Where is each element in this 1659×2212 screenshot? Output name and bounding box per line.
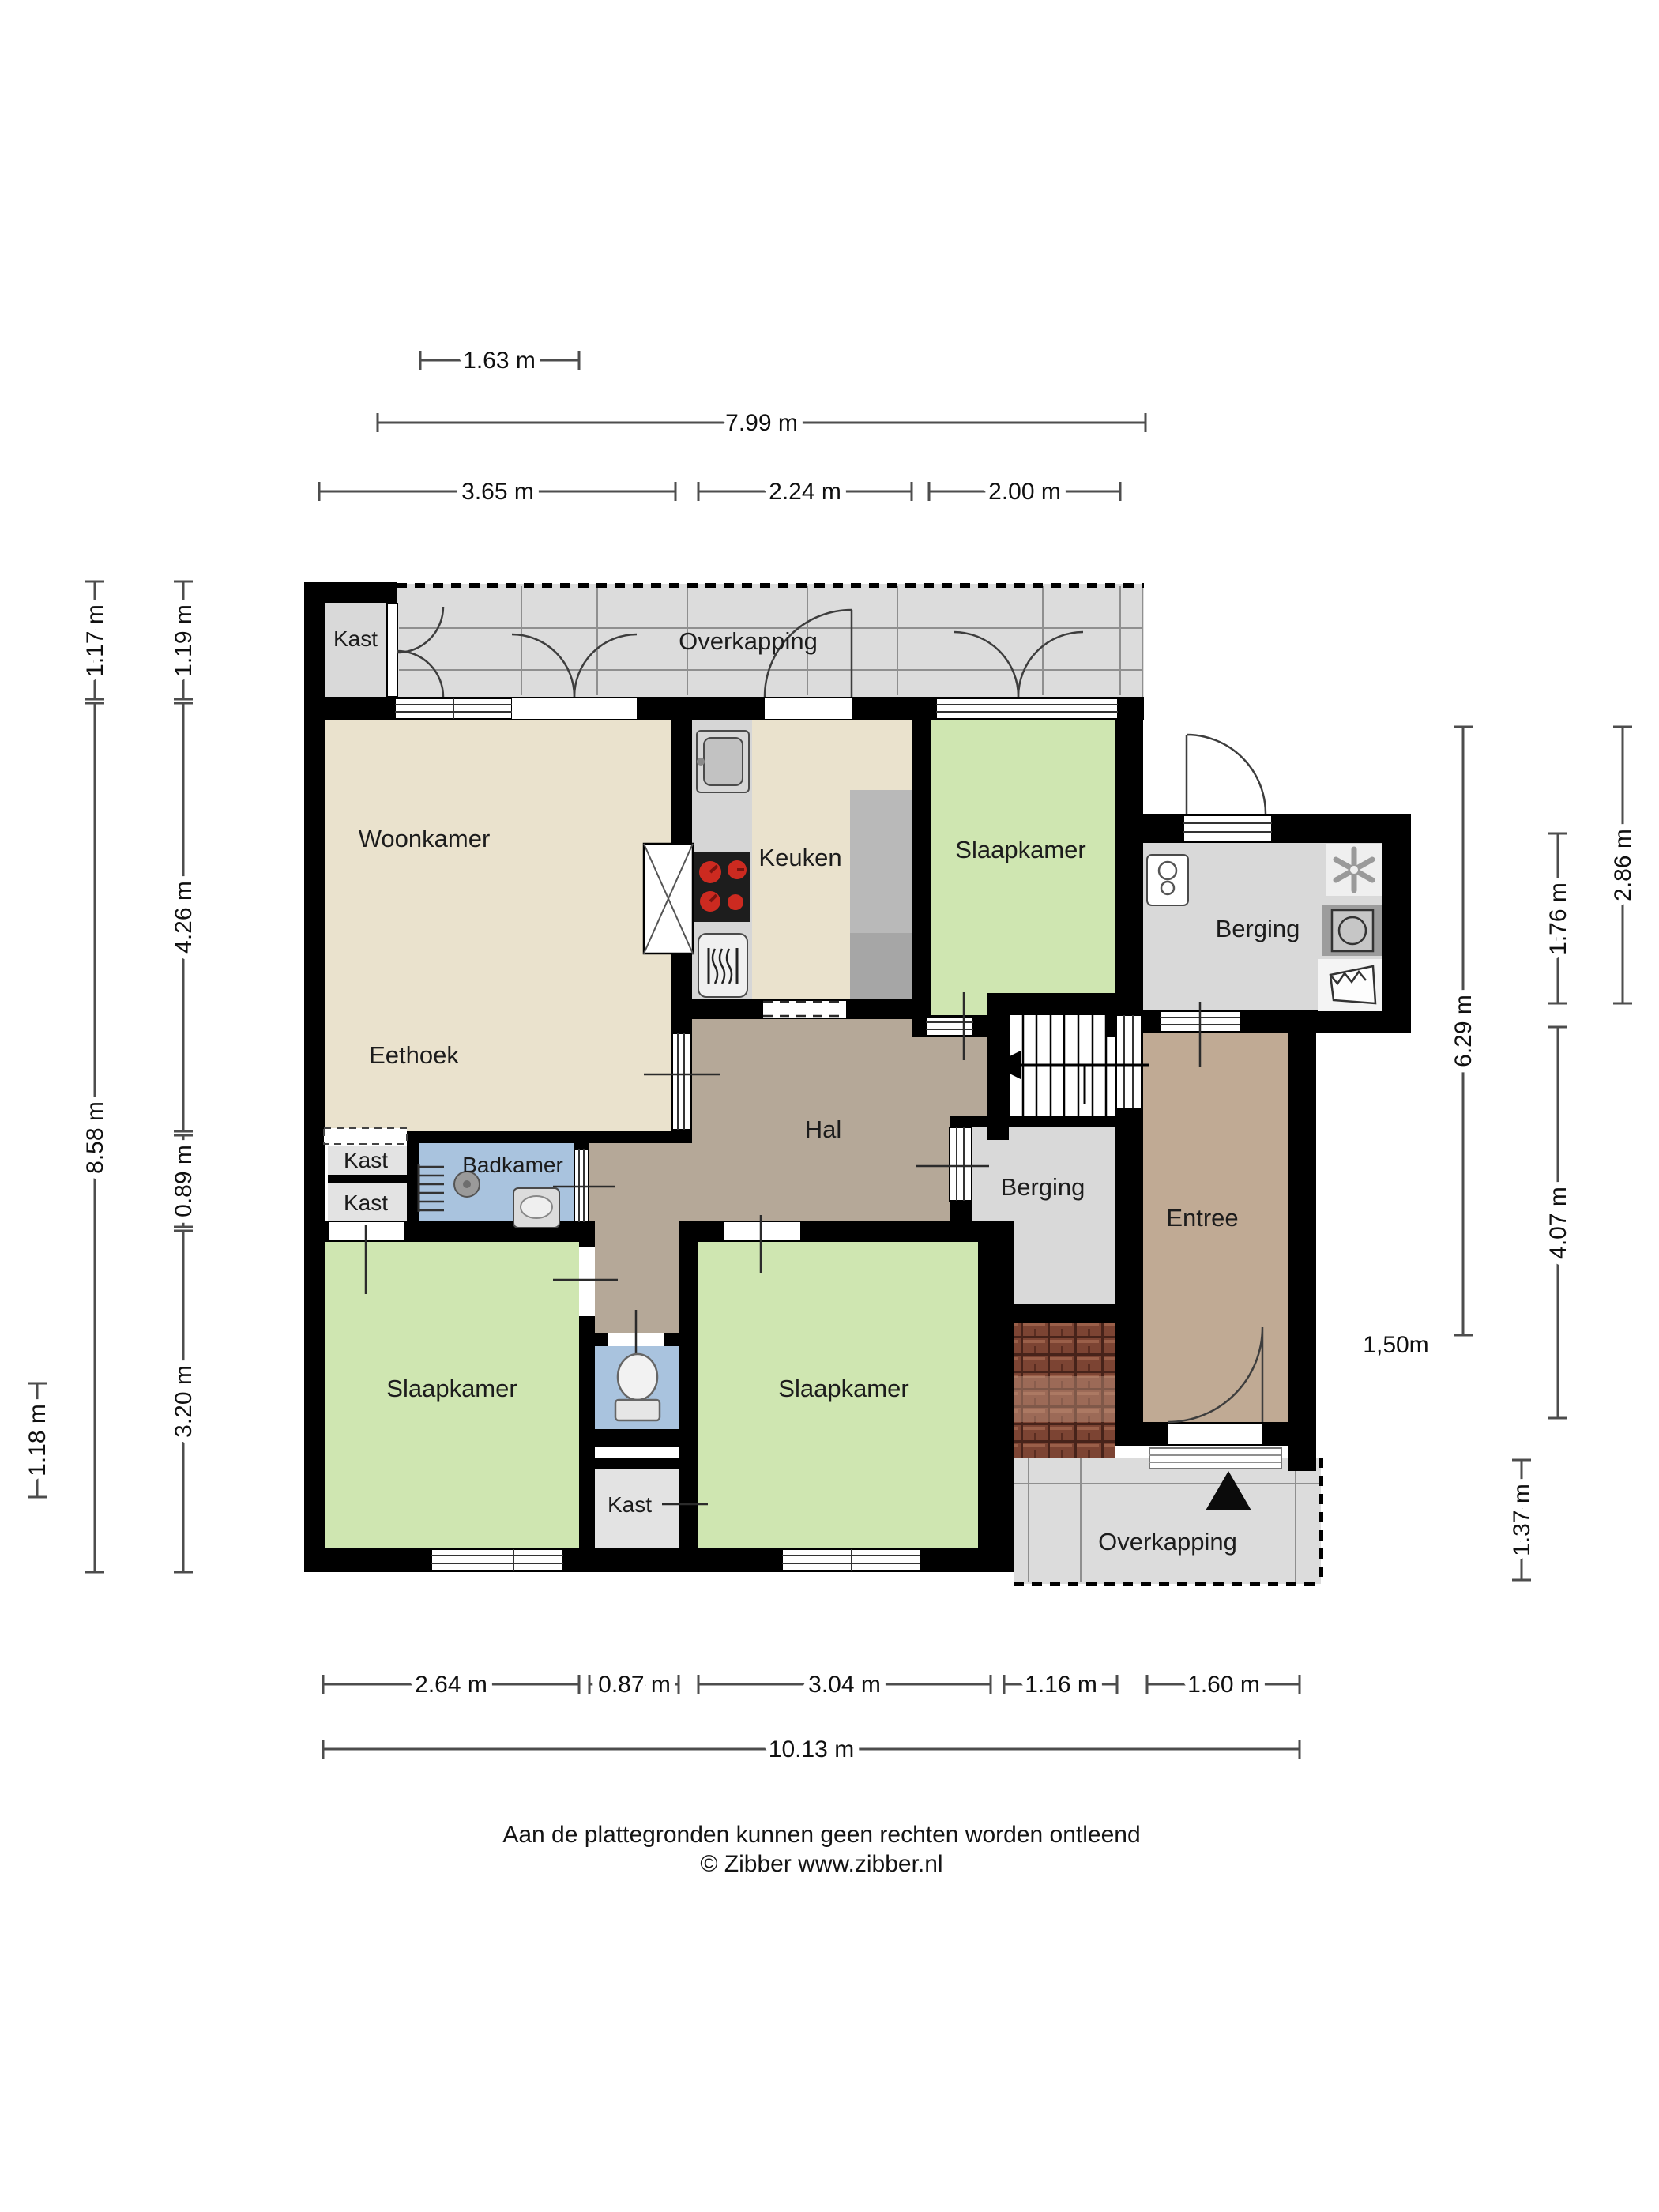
kitchen-cabinet — [850, 933, 912, 999]
room-label-overkapping-br: Overkapping — [1098, 1528, 1237, 1556]
floor-hal — [589, 1143, 692, 1221]
dimension: 0.89 m — [171, 1135, 197, 1227]
dimension-label: 7.99 m — [725, 410, 798, 436]
room-label-slaapkamer-bm: Slaapkamer — [778, 1375, 908, 1402]
ventilation-fan-icon — [1326, 844, 1382, 896]
brick-highlight — [1014, 1376, 1115, 1422]
room-label-badkamer: Badkamer — [462, 1153, 563, 1177]
dimension: 7.99 m — [378, 410, 1145, 436]
dimension: 1.63 m — [420, 348, 579, 374]
dimension: 1.76 m — [1545, 833, 1571, 1003]
room-label-berging-inner: Berging — [1001, 1173, 1085, 1201]
dimension: 2.00 m — [929, 479, 1120, 505]
footer: Aan de plattegronden kunnen geen rechten… — [502, 1822, 1140, 1877]
front-door-opening — [1168, 1424, 1262, 1444]
dimension-label: 3.04 m — [808, 1672, 881, 1698]
door-opening — [672, 1033, 690, 1130]
dimension-label: 10.13 m — [769, 1736, 854, 1762]
dimension-label: 1.60 m — [1187, 1672, 1260, 1698]
dimension: 2.86 m — [1610, 727, 1636, 1003]
toilet-icon — [615, 1354, 660, 1420]
dimension: 3.04 m — [698, 1672, 991, 1698]
pass-opening — [763, 1001, 846, 1018]
room-label-slaapkamer-tr: Slaapkamer — [955, 836, 1085, 863]
dimension: 3.65 m — [319, 479, 675, 505]
dimension: 1.17 m — [82, 581, 108, 699]
dimension: 10.13 m — [323, 1736, 1300, 1762]
brick-steps — [1014, 1323, 1115, 1458]
washing-machine-icon — [1322, 905, 1382, 956]
dimension: 1.60 m — [1147, 1672, 1300, 1698]
floor-plan: Kast Overkapping Woonkamer Keuken Slaapk… — [0, 0, 1659, 2212]
room-label-keuken: Keuken — [758, 844, 841, 871]
dimension-label: 0.89 m — [171, 1145, 197, 1217]
dimension-label: 2.64 m — [415, 1672, 487, 1698]
sink-icon — [697, 731, 749, 792]
door-opening — [765, 698, 852, 719]
dimension: 1.16 m — [1004, 1672, 1117, 1698]
footer-disclaimer: Aan de plattegronden kunnen geen rechten… — [502, 1822, 1140, 1848]
room-label-hal: Hal — [805, 1115, 842, 1143]
window — [782, 1549, 920, 1571]
room-label-overkapping-top: Overkapping — [679, 627, 818, 655]
floor-hal — [595, 1221, 679, 1333]
door-opening — [512, 698, 637, 719]
dimension-label: 6.29 m — [1450, 995, 1477, 1067]
dimension-label: 2.86 m — [1610, 829, 1636, 901]
dimension: 3.20 m — [171, 1231, 197, 1572]
dimension: 2.24 m — [698, 479, 912, 505]
floor-woonkamer-eethoek — [325, 720, 671, 1143]
room-label-berging-ext: Berging — [1216, 915, 1300, 942]
dimension: 1.37 m — [1509, 1460, 1535, 1580]
floor-overkapping-br — [1014, 1458, 1321, 1584]
door-opening — [950, 1127, 972, 1201]
stove-icon — [694, 852, 750, 922]
room-label-entree: Entree — [1166, 1204, 1238, 1232]
dimension: 4.26 m — [171, 703, 197, 1131]
dimension-label: 2.24 m — [769, 479, 841, 505]
dimension-label: 3.65 m — [461, 479, 534, 505]
dimension: 6.29 m — [1450, 727, 1477, 1335]
floor-slaapkamer-tr — [931, 720, 1115, 1015]
dimension-label: 1.16 m — [1025, 1672, 1097, 1698]
dimension-label: 8.58 m — [82, 1101, 108, 1174]
dimension-label: 0.87 m — [598, 1672, 671, 1698]
dimension-label: 1.19 m — [171, 604, 197, 677]
window — [395, 698, 512, 719]
dimension: 2.64 m — [323, 1672, 579, 1698]
entrance-step — [1149, 1448, 1281, 1469]
oven-icon — [698, 934, 747, 997]
door-opening — [724, 1222, 800, 1240]
height-note: 1,50m — [1363, 1332, 1428, 1358]
dimension-label: 4.07 m — [1545, 1187, 1571, 1259]
dimension-label: 1.76 m — [1545, 882, 1571, 955]
dimension-label: 4.26 m — [171, 881, 197, 954]
room-label-kast-bottom: Kast — [608, 1492, 652, 1517]
window — [936, 698, 1118, 719]
floor-entree — [1143, 1030, 1288, 1446]
room-label-kast-tl: Kast — [333, 626, 378, 651]
dimension: 0.87 m — [589, 1672, 679, 1698]
dimension: 8.58 m — [82, 703, 108, 1572]
internal-window — [1116, 1015, 1142, 1108]
door-opening — [1183, 815, 1272, 841]
pass-through-icon — [644, 844, 693, 954]
laundry-basket-icon — [1318, 959, 1382, 1011]
refrigerator-column — [850, 790, 912, 933]
dimension-label: 2.00 m — [988, 479, 1061, 505]
storage-door-arc — [1187, 735, 1266, 814]
dimension: 1.18 m — [24, 1383, 51, 1497]
loose-closet-dashed — [324, 1128, 407, 1144]
dimension-label: 1.37 m — [1509, 1484, 1535, 1556]
door-opening — [926, 1017, 973, 1036]
closet-door-leaf — [387, 604, 397, 697]
dimension: 4.07 m — [1545, 1027, 1571, 1418]
dimension: 1.19 m — [171, 581, 197, 699]
footer-copyright: © Zibber www.zibber.nl — [700, 1851, 942, 1877]
room-label-kast-2: Kast — [344, 1191, 388, 1215]
window — [431, 1549, 563, 1571]
dimension-label: 1.17 m — [82, 604, 108, 677]
dimension-label: 1.63 m — [463, 348, 536, 374]
room-label-eethoek: Eethoek — [369, 1041, 459, 1069]
room-label-woonkamer: Woonkamer — [359, 825, 491, 852]
dimension-label: 3.20 m — [171, 1365, 197, 1438]
door-opening — [579, 1247, 595, 1316]
boiler-icon — [1147, 855, 1188, 905]
washbasin-icon — [513, 1188, 559, 1228]
room-label-slaapkamer-bl: Slaapkamer — [386, 1375, 517, 1402]
dimension-label: 1.18 m — [24, 1404, 51, 1477]
closet-opening — [329, 1222, 404, 1240]
room-label-kast-1: Kast — [344, 1148, 388, 1172]
